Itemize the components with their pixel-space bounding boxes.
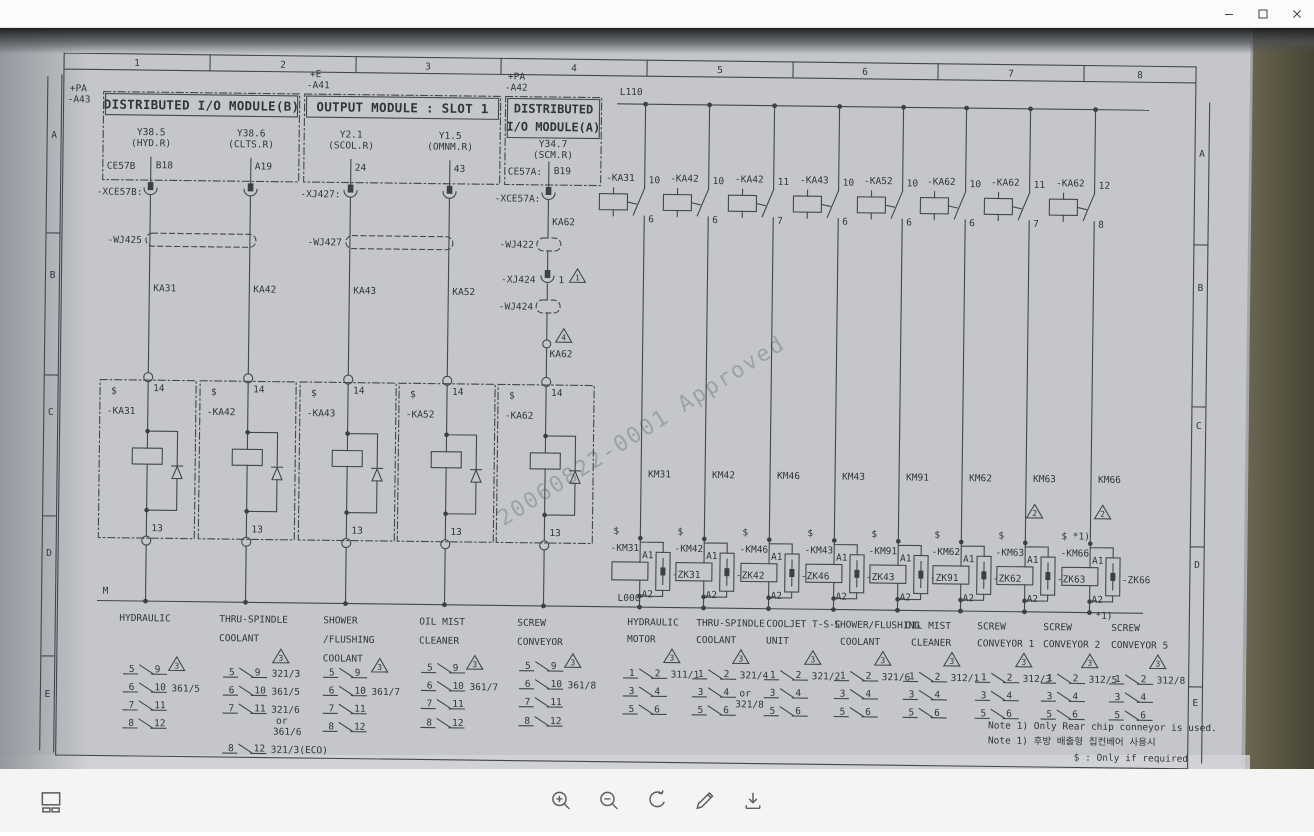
svg-text:4: 4 <box>561 333 566 342</box>
svg-text:13: 13 <box>251 524 263 535</box>
download-icon <box>741 788 766 813</box>
svg-text:10: 10 <box>907 178 919 189</box>
svg-text:12: 12 <box>154 718 166 729</box>
svg-text:COOLANT: COOLANT <box>323 653 363 664</box>
bottom-toolbar <box>0 769 1314 832</box>
svg-text:$: $ <box>934 530 940 541</box>
svg-text:5: 5 <box>329 667 335 678</box>
svg-text:-WJ424: -WJ424 <box>499 301 534 312</box>
svg-text:KA62: KA62 <box>549 349 572 360</box>
svg-text:3: 3 <box>1047 691 1053 702</box>
svg-text:A19: A19 <box>255 161 273 172</box>
svg-text:13: 13 <box>151 523 163 534</box>
close-button[interactable] <box>1280 0 1314 27</box>
svg-text:24: 24 <box>355 163 367 174</box>
svg-text:7: 7 <box>777 216 783 227</box>
svg-text:4: 4 <box>795 688 801 699</box>
svg-text:321/3(ECO): 321/3(ECO) <box>271 745 328 757</box>
svg-text:361/7: 361/7 <box>371 687 400 698</box>
svg-text:2: 2 <box>280 60 286 71</box>
svg-text:8: 8 <box>128 718 134 729</box>
svg-text:5: 5 <box>628 704 634 715</box>
svg-text:KA42: KA42 <box>253 284 276 295</box>
svg-text:-KA42: -KA42 <box>735 174 764 185</box>
svg-text:12: 12 <box>354 722 366 733</box>
svg-text:$: $ <box>677 527 683 538</box>
svg-text:B18: B18 <box>156 160 174 171</box>
svg-text:E: E <box>44 689 50 700</box>
svg-text:$: $ <box>111 386 117 397</box>
svg-text:-KM66: -KM66 <box>1060 548 1089 559</box>
svg-text:5: 5 <box>717 65 723 76</box>
svg-text:or: or <box>739 688 751 699</box>
svg-text:4: 4 <box>654 686 660 697</box>
svg-text:-KA42: -KA42 <box>670 173 699 184</box>
minimize-button[interactable] <box>1212 0 1246 27</box>
svg-text:HYDRAULIC: HYDRAULIC <box>627 617 679 629</box>
svg-text:2: 2 <box>1007 673 1013 684</box>
svg-text:5: 5 <box>697 705 703 716</box>
svg-text:3: 3 <box>174 661 179 670</box>
svg-text:-WJ425: -WJ425 <box>108 235 142 246</box>
svg-text:$: $ <box>311 388 317 399</box>
svg-text:361/6: 361/6 <box>273 727 302 738</box>
svg-text:8: 8 <box>426 718 432 729</box>
svg-text:SCREW: SCREW <box>517 618 546 629</box>
svg-text:2: 2 <box>724 669 730 680</box>
download-button[interactable] <box>737 784 770 817</box>
svg-text:10: 10 <box>713 176 725 187</box>
svg-text:CE57B: CE57B <box>107 161 136 172</box>
svg-text:7: 7 <box>228 703 234 714</box>
svg-text:$: $ <box>509 391 515 402</box>
svg-text:2: 2 <box>866 671 872 682</box>
svg-text:1: 1 <box>1115 674 1121 685</box>
svg-text:3: 3 <box>981 690 987 701</box>
svg-text:-KA31: -KA31 <box>606 173 635 184</box>
svg-text:6: 6 <box>906 217 912 228</box>
svg-text:11: 11 <box>1034 180 1046 191</box>
svg-text:13: 13 <box>351 526 363 537</box>
svg-text:KA31: KA31 <box>153 283 176 294</box>
svg-text:3: 3 <box>629 686 635 697</box>
svg-text:4: 4 <box>1006 691 1012 702</box>
svg-text:A2: A2 <box>1092 595 1104 606</box>
svg-text:361/5: 361/5 <box>271 687 300 698</box>
svg-text:3: 3 <box>840 689 846 700</box>
svg-text:$ *1): $ *1) <box>1061 531 1090 542</box>
svg-text:6: 6 <box>129 682 135 693</box>
photo-background <box>0 28 1314 769</box>
svg-text:KM46: KM46 <box>777 471 800 482</box>
svg-text:4: 4 <box>723 687 729 698</box>
svg-text:8: 8 <box>1098 220 1104 231</box>
zoom-out-icon <box>597 788 622 813</box>
svg-text:C: C <box>48 407 54 418</box>
svg-text:KM91: KM91 <box>906 472 929 483</box>
svg-text:2: 2 <box>935 672 941 683</box>
svg-text:B: B <box>1197 283 1203 294</box>
svg-text:+E: +E <box>310 69 322 80</box>
svg-text:A1: A1 <box>642 550 654 561</box>
svg-text:7: 7 <box>128 700 134 711</box>
svg-text:10: 10 <box>452 681 464 692</box>
svg-text:MOTOR: MOTOR <box>627 634 656 645</box>
svg-text:3: 3 <box>278 654 283 663</box>
svg-text:1: 1 <box>909 671 915 682</box>
svg-text:KM63: KM63 <box>1033 474 1056 485</box>
svg-text:Y34.7: Y34.7 <box>539 139 568 150</box>
svg-text:4: 4 <box>934 690 940 701</box>
svg-text:11: 11 <box>778 177 790 188</box>
svg-text:SCREW: SCREW <box>1111 623 1140 634</box>
svg-text:6: 6 <box>934 708 940 719</box>
toolbar-center-icons <box>545 784 770 817</box>
svg-text:DISTRIBUTED I/O MODULE(B): DISTRIBUTED I/O MODULE(B) <box>104 97 300 114</box>
svg-text:14: 14 <box>551 388 563 399</box>
svg-text:6: 6 <box>1072 709 1078 720</box>
svg-text:-WJ427: -WJ427 <box>308 237 342 248</box>
zoom-in-icon <box>549 788 574 813</box>
svg-text:6: 6 <box>1140 710 1146 721</box>
svg-text:D: D <box>46 548 52 559</box>
svg-text:13: 13 <box>549 528 561 539</box>
svg-text:3: 3 <box>698 687 704 698</box>
svg-text:A1: A1 <box>963 554 975 565</box>
svg-text:A1: A1 <box>836 553 848 564</box>
svg-text:KA43: KA43 <box>353 286 376 297</box>
svg-text:KA52: KA52 <box>452 287 475 298</box>
svg-text:C: C <box>1196 421 1202 432</box>
svg-text:A: A <box>51 130 57 141</box>
svg-text:10: 10 <box>550 679 562 690</box>
svg-text:A2: A2 <box>1027 594 1039 605</box>
svg-text:3: 3 <box>1087 659 1092 668</box>
svg-text:5: 5 <box>229 667 235 678</box>
svg-text:1: 1 <box>629 668 635 679</box>
maximize-button[interactable] <box>1246 0 1280 27</box>
svg-text:A1: A1 <box>1092 556 1104 567</box>
svg-text:5: 5 <box>1046 709 1052 720</box>
svg-text:3: 3 <box>570 658 575 667</box>
svg-text:COOLANT: COOLANT <box>840 637 880 648</box>
svg-text:-KA62: -KA62 <box>991 177 1020 188</box>
svg-text:12: 12 <box>550 716 562 727</box>
svg-text:11: 11 <box>550 697 562 708</box>
close-icon <box>1291 8 1303 20</box>
svg-text:3: 3 <box>909 689 915 700</box>
svg-text:-KA62: -KA62 <box>927 177 956 188</box>
svg-text:5: 5 <box>1114 710 1120 721</box>
svg-text:2: 2 <box>1141 674 1147 685</box>
svg-text:-KM46: -KM46 <box>740 544 769 555</box>
svg-text:OUTPUT MODULE : SLOT 1: OUTPUT MODULE : SLOT 1 <box>316 99 488 116</box>
svg-text:7: 7 <box>328 703 334 714</box>
svg-text:A2: A2 <box>836 592 848 603</box>
svg-text:-A42: -A42 <box>505 82 528 93</box>
svg-text:321/6: 321/6 <box>271 705 300 716</box>
svg-text:A2: A2 <box>900 592 912 603</box>
svg-text:-KM43: -KM43 <box>804 545 833 556</box>
svg-text:1: 1 <box>981 672 987 683</box>
svg-text:12: 12 <box>254 743 266 754</box>
svg-text:361/5: 361/5 <box>171 683 200 694</box>
svg-text:-XJ427:: -XJ427: <box>300 189 340 200</box>
svg-text:A1: A1 <box>706 551 718 562</box>
svg-text:/FLUSHING: /FLUSHING <box>323 634 375 646</box>
svg-text:(CLTS.R): (CLTS.R) <box>228 139 274 151</box>
svg-text:6: 6 <box>427 681 433 692</box>
svg-text:CE57A:: CE57A: <box>508 166 542 177</box>
svg-text:-ZK63: -ZK63 <box>1057 574 1086 585</box>
svg-text:UNIT: UNIT <box>766 636 789 647</box>
zoom-out-button[interactable] <box>593 784 626 817</box>
svg-text:HYDRAULIC: HYDRAULIC <box>119 613 171 625</box>
svg-text:7: 7 <box>1033 219 1039 230</box>
svg-text:3: 3 <box>377 663 382 672</box>
svg-text:6: 6 <box>842 217 848 228</box>
svg-text:43: 43 <box>454 164 466 175</box>
svg-text:6: 6 <box>229 685 235 696</box>
svg-text:-KA52: -KA52 <box>864 176 893 187</box>
svg-text:-KM42: -KM42 <box>675 544 704 555</box>
svg-text:10: 10 <box>970 179 982 190</box>
svg-text:7: 7 <box>426 699 432 710</box>
svg-text:3: 3 <box>1155 659 1160 668</box>
svg-text:4: 4 <box>1140 692 1146 703</box>
svg-text:9: 9 <box>551 661 557 672</box>
svg-text:-A43: -A43 <box>68 94 91 105</box>
svg-text:361/7: 361/7 <box>469 682 498 693</box>
svg-text:14: 14 <box>452 387 464 398</box>
svg-text:$: $ <box>998 531 1004 542</box>
svg-text:312/8: 312/8 <box>1157 675 1186 686</box>
svg-text:5: 5 <box>769 706 775 717</box>
svg-text:321/3: 321/3 <box>272 669 301 680</box>
svg-text:-ZK42: -ZK42 <box>736 570 765 581</box>
svg-text:$: $ <box>807 528 813 539</box>
svg-text:CLEANER: CLEANER <box>911 637 951 648</box>
svg-text:KM62: KM62 <box>969 473 992 484</box>
svg-text:4: 4 <box>865 689 871 700</box>
svg-text:DISTRIBUTED: DISTRIBUTED <box>514 102 594 117</box>
svg-text:-A41: -A41 <box>307 80 330 91</box>
svg-text:CONVEYOR 1: CONVEYOR 1 <box>977 638 1035 650</box>
svg-text:SCREW: SCREW <box>977 621 1006 632</box>
svg-text:-KM63: -KM63 <box>995 547 1024 558</box>
svg-text:6: 6 <box>712 215 718 226</box>
svg-text:10: 10 <box>354 686 366 697</box>
svg-text:-KA52: -KA52 <box>406 409 435 420</box>
svg-text:B19: B19 <box>554 166 572 177</box>
photo-viewer[interactable]: 20060822-0001 Approved 1 2 3 4 5 6 7 8 A… <box>0 0 1314 832</box>
svg-text:-XJ424: -XJ424 <box>501 274 536 285</box>
svg-text:2: 2 <box>1032 509 1037 518</box>
svg-text:THRU-SPINDLE: THRU-SPINDLE <box>696 618 765 630</box>
svg-text:-KA42: -KA42 <box>207 407 236 418</box>
svg-text:2: 2 <box>1073 673 1079 684</box>
svg-text:A2: A2 <box>642 589 654 600</box>
svg-text:OIL MIST: OIL MIST <box>905 620 951 632</box>
svg-text:-KA43: -KA43 <box>307 408 336 419</box>
svg-text:THRU-SPINDLE: THRU-SPINDLE <box>219 614 288 626</box>
svg-text:5: 5 <box>839 707 845 718</box>
svg-text:11: 11 <box>354 704 366 715</box>
svg-text:8: 8 <box>228 743 234 754</box>
svg-text:2: 2 <box>796 670 802 681</box>
edit-icon <box>693 788 718 813</box>
svg-text:3: 3 <box>738 654 743 663</box>
svg-text:CONVEYOR 2: CONVEYOR 2 <box>1043 639 1100 651</box>
svg-text:(OMNM.R): (OMNM.R) <box>427 142 473 154</box>
svg-text:-KA62: -KA62 <box>505 410 534 421</box>
svg-text:1: 1 <box>770 670 776 681</box>
svg-text:B: B <box>50 270 56 281</box>
svg-text:9: 9 <box>355 668 361 679</box>
svg-text:-XCE57B:: -XCE57B: <box>97 186 143 198</box>
svg-text:$ : Only if required: $ : Only if required <box>1074 752 1189 764</box>
svg-text:I/O MODULE(A): I/O MODULE(A) <box>506 119 600 134</box>
svg-text:4: 4 <box>571 63 577 74</box>
svg-text:-KM31: -KM31 <box>611 543 640 554</box>
svg-text:CLEANER: CLEANER <box>419 635 459 646</box>
svg-text:-WJ422: -WJ422 <box>499 239 533 250</box>
svg-text:2: 2 <box>655 668 661 679</box>
svg-text:12: 12 <box>452 718 464 729</box>
svg-text:6: 6 <box>795 706 801 717</box>
svg-text:COOLANT: COOLANT <box>219 633 259 644</box>
svg-text:3: 3 <box>472 660 477 669</box>
svg-text:-XCE57A:: -XCE57A: <box>495 193 541 205</box>
schematic-photo: 20060822-0001 Approved 1 2 3 4 5 6 7 8 A… <box>0 0 1314 832</box>
svg-text:9: 9 <box>255 667 261 678</box>
svg-text:-ZK91: -ZK91 <box>930 573 959 584</box>
svg-text:KA62: KA62 <box>552 217 575 228</box>
svg-text:A2: A2 <box>771 591 783 602</box>
svg-text:-KA31: -KA31 <box>107 406 136 417</box>
svg-text:Y1.5: Y1.5 <box>439 131 462 142</box>
svg-text:-ZK46: -ZK46 <box>801 571 830 582</box>
svg-text:KM42: KM42 <box>712 470 735 481</box>
svg-text:-ZK66: -ZK66 <box>1122 575 1151 586</box>
svg-text:A1: A1 <box>1027 555 1039 566</box>
svg-text:6: 6 <box>969 218 975 229</box>
svg-text:1: 1 <box>840 671 846 682</box>
svg-text:11: 11 <box>452 699 464 710</box>
svg-text:*1): *1) <box>1095 611 1112 622</box>
svg-text:A: A <box>1199 149 1205 160</box>
svg-text:6: 6 <box>862 67 868 78</box>
svg-text:3: 3 <box>770 688 776 699</box>
svg-text:SHOWER: SHOWER <box>323 615 358 626</box>
svg-text:A2: A2 <box>963 593 975 604</box>
svg-text:1: 1 <box>698 669 704 680</box>
svg-text:6: 6 <box>648 214 654 225</box>
svg-text:14: 14 <box>353 386 365 397</box>
svg-text:Y38.5: Y38.5 <box>137 127 166 138</box>
svg-text:6: 6 <box>865 707 871 718</box>
svg-text:COOLANT: COOLANT <box>696 635 736 646</box>
svg-text:KM43: KM43 <box>842 472 865 483</box>
svg-text:10: 10 <box>154 682 166 693</box>
svg-text:6: 6 <box>525 679 531 690</box>
svg-text:1: 1 <box>1047 673 1053 684</box>
svg-text:A1: A1 <box>900 553 912 564</box>
svg-text:321/8: 321/8 <box>735 699 764 710</box>
svg-text:5: 5 <box>525 661 531 672</box>
svg-text:10: 10 <box>254 685 266 696</box>
svg-text:-KA43: -KA43 <box>800 175 829 186</box>
svg-text:SCREW: SCREW <box>1043 622 1072 633</box>
svg-text:5: 5 <box>129 664 135 675</box>
edit-button[interactable] <box>689 784 722 817</box>
svg-text:10: 10 <box>649 175 661 186</box>
svg-text:5: 5 <box>908 707 914 718</box>
svg-text:-KA62: -KA62 <box>1056 178 1085 189</box>
svg-text:1: 1 <box>575 273 580 282</box>
svg-text:3: 3 <box>425 61 431 72</box>
rotate-button[interactable] <box>641 784 674 817</box>
svg-text:9: 9 <box>453 663 459 674</box>
svg-text:L000: L000 <box>618 593 641 604</box>
svg-text:M: M <box>103 586 109 597</box>
svg-text:CONVEYOR 5: CONVEYOR 5 <box>1111 640 1168 652</box>
svg-text:14: 14 <box>153 383 165 394</box>
svg-text:3: 3 <box>1021 658 1026 667</box>
svg-text:1: 1 <box>134 58 140 69</box>
thumbnails-button[interactable] <box>34 784 68 818</box>
svg-text:10: 10 <box>843 178 855 189</box>
svg-text:6: 6 <box>723 705 729 716</box>
svg-text:3: 3 <box>810 655 815 664</box>
svg-text:$: $ <box>871 529 877 540</box>
svg-text:11: 11 <box>254 703 266 714</box>
zoom-in-button[interactable] <box>545 784 578 817</box>
svg-text:+PA: +PA <box>508 71 526 82</box>
svg-text:6: 6 <box>654 704 660 715</box>
svg-text:3: 3 <box>669 654 674 663</box>
svg-text:6: 6 <box>329 685 335 696</box>
svg-text:3: 3 <box>880 656 885 665</box>
svg-text:1: 1 <box>558 275 564 286</box>
svg-text:4: 4 <box>1072 691 1078 702</box>
thumbnails-icon <box>38 788 64 814</box>
svg-text:7: 7 <box>524 697 530 708</box>
svg-text:13: 13 <box>450 527 462 538</box>
svg-text:9: 9 <box>155 664 161 675</box>
minimize-icon <box>1223 8 1235 20</box>
svg-text:KM31: KM31 <box>648 469 671 480</box>
maximize-icon <box>1257 8 1269 20</box>
titlebar <box>0 0 1314 28</box>
svg-text:8: 8 <box>328 721 334 732</box>
svg-text:$: $ <box>410 389 416 400</box>
svg-text:6: 6 <box>1006 709 1012 720</box>
svg-text:L110: L110 <box>620 87 643 98</box>
svg-text:11: 11 <box>154 700 166 711</box>
svg-text:A1: A1 <box>771 552 783 563</box>
svg-text:or: or <box>276 716 288 727</box>
svg-text:$: $ <box>211 387 217 398</box>
svg-text:(HYD.R): (HYD.R) <box>131 138 171 149</box>
svg-text:D: D <box>1194 560 1200 571</box>
svg-text:Note 1) 후방 배출형 칩컨베어 사용시: Note 1) 후방 배출형 칩컨베어 사용시 <box>988 735 1156 748</box>
svg-text:3: 3 <box>949 657 954 666</box>
svg-text:CONVEYOR: CONVEYOR <box>517 637 563 649</box>
svg-text:$: $ <box>613 526 619 537</box>
svg-text:2: 2 <box>1100 510 1105 519</box>
svg-text:Y2.1: Y2.1 <box>340 129 363 140</box>
